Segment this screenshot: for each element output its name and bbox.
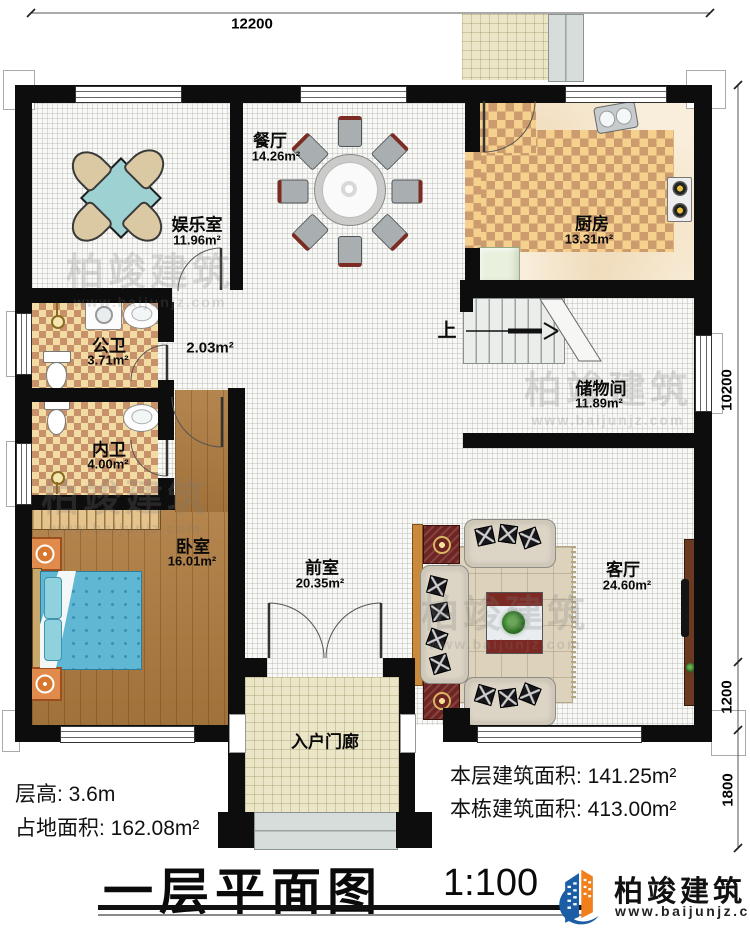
window-living-south <box>477 726 642 743</box>
public-bath-sink <box>123 301 160 329</box>
corner-pillar-bottom-right <box>711 710 746 756</box>
window-dining-north <box>300 86 407 103</box>
public-bath-toilet <box>43 351 69 391</box>
private-bath-toilet <box>44 398 68 435</box>
private-bath-lamp <box>51 471 65 485</box>
nightstand-1 <box>28 537 62 571</box>
title-underline <box>98 905 584 910</box>
dim-tick <box>734 658 742 666</box>
staircase <box>463 298 565 364</box>
sofa-pillow <box>474 525 495 546</box>
back-porch-steps <box>548 14 584 82</box>
end-table-1 <box>423 525 460 564</box>
land-area-text: 占地面积: 162.08m² <box>15 812 199 842</box>
building-area-text: 本栋建筑面积: 413.00m² <box>450 793 676 823</box>
floor-kitchen-entry-checker <box>465 152 481 248</box>
wall-bedroom-north <box>32 495 175 510</box>
floor-plan-page: 柏竣建筑 www.baijunjz.com 柏竣建筑 www.baijunjz.… <box>0 0 750 937</box>
dim-right-middle: 1200 <box>719 680 736 713</box>
wall-bedroom-east <box>228 388 245 725</box>
wall-storage-south <box>463 433 712 448</box>
nightstand-2 <box>28 667 62 701</box>
wall-kitchen-south <box>460 280 712 298</box>
dim-tick <box>734 844 742 852</box>
wall-frontroom-south-right <box>383 658 415 677</box>
wall-public-bath-east-a <box>158 302 174 342</box>
floor-kitchen-door-checker <box>480 103 536 153</box>
lamp-cord-2 <box>56 482 58 494</box>
window-private-bath-west <box>16 443 32 505</box>
dim-tick <box>27 9 35 17</box>
floor-area-text: 本层建筑面积: 141.25m² <box>450 760 676 790</box>
porch-pillar-right <box>396 812 432 848</box>
room-area-public-bath: 3.71m² <box>87 353 128 368</box>
room-area-kitchen: 13.31m² <box>565 232 613 247</box>
floor-back-porch <box>462 14 548 80</box>
stairs-up-label: 上 <box>437 316 456 343</box>
room-label-porch: 入户门廊 <box>291 728 359 753</box>
window-entertainment-north <box>75 86 182 103</box>
public-bath-lamp <box>51 315 65 329</box>
dim-right-upper: 10200 <box>719 369 736 411</box>
dim-tick <box>734 81 742 89</box>
floor-height-text: 层高: 3.6m <box>15 778 115 808</box>
plant <box>502 611 525 634</box>
wall-bath-divider <box>32 388 174 402</box>
wall-public-bath-east-b <box>158 380 174 388</box>
room-area-storage: 11.89m² <box>575 396 623 411</box>
wall-private-bath-east-b <box>158 478 174 495</box>
window-kitchen-north <box>565 86 667 103</box>
wall-east <box>694 85 712 742</box>
brand-site: www.baijunjz.com <box>615 903 750 919</box>
tv <box>681 579 689 637</box>
wall-kitchen-west-a <box>465 97 480 152</box>
dining-chair-e <box>392 180 423 204</box>
bed-pillow-2 <box>44 619 62 661</box>
room-area-dining: 14.26m² <box>252 149 300 164</box>
wall-entertainment-south <box>32 288 172 303</box>
wall-private-bath-east-a <box>158 402 174 440</box>
room-area-entertainment: 11.96m² <box>173 233 221 248</box>
brand-logo-icon <box>550 865 608 925</box>
porch-niche-left <box>229 714 246 753</box>
rug-fringe <box>571 546 576 701</box>
washing-machine <box>85 299 122 330</box>
wall-stair-stub <box>460 298 473 312</box>
title-underline-thin <box>98 914 584 916</box>
dim-tick <box>706 9 714 17</box>
dim-right-lower: 1800 <box>720 773 737 806</box>
porch-pillar-left <box>218 812 254 848</box>
room-area-front-room: 20.35m² <box>296 576 344 591</box>
window-public-bath-west <box>16 313 32 375</box>
room-area-bedroom: 16.01m² <box>168 554 216 569</box>
bed-pillow-1 <box>44 577 62 619</box>
entry-steps <box>254 812 398 850</box>
window-bedroom-south <box>60 726 195 743</box>
private-bath-sink <box>123 404 160 432</box>
wall-west <box>15 85 32 742</box>
dim-top: 12200 <box>231 16 273 33</box>
stove <box>667 177 692 222</box>
room-area-hall: 2.03m² <box>186 340 234 357</box>
floor-bedroom-vestibule <box>175 390 228 512</box>
room-area-private-bath: 4.00m² <box>87 457 128 472</box>
room-area-living: 24.60m² <box>603 578 651 593</box>
logo-tower-blue <box>565 873 579 923</box>
window-storage-east <box>695 335 712 412</box>
sofa-pillow <box>498 524 518 544</box>
dining-chair-s <box>338 236 362 267</box>
plan-scale: 1:100 <box>443 862 538 905</box>
sofa-pillow <box>498 688 518 708</box>
sofa-pillow <box>430 602 451 623</box>
porch-niche-right <box>400 714 416 753</box>
wall-entertainment-dining <box>230 103 243 290</box>
dining-chair-n <box>338 116 362 147</box>
dining-chair-w <box>278 180 309 204</box>
logo-tower-orange <box>581 870 593 918</box>
dining-table-hub <box>341 181 357 197</box>
